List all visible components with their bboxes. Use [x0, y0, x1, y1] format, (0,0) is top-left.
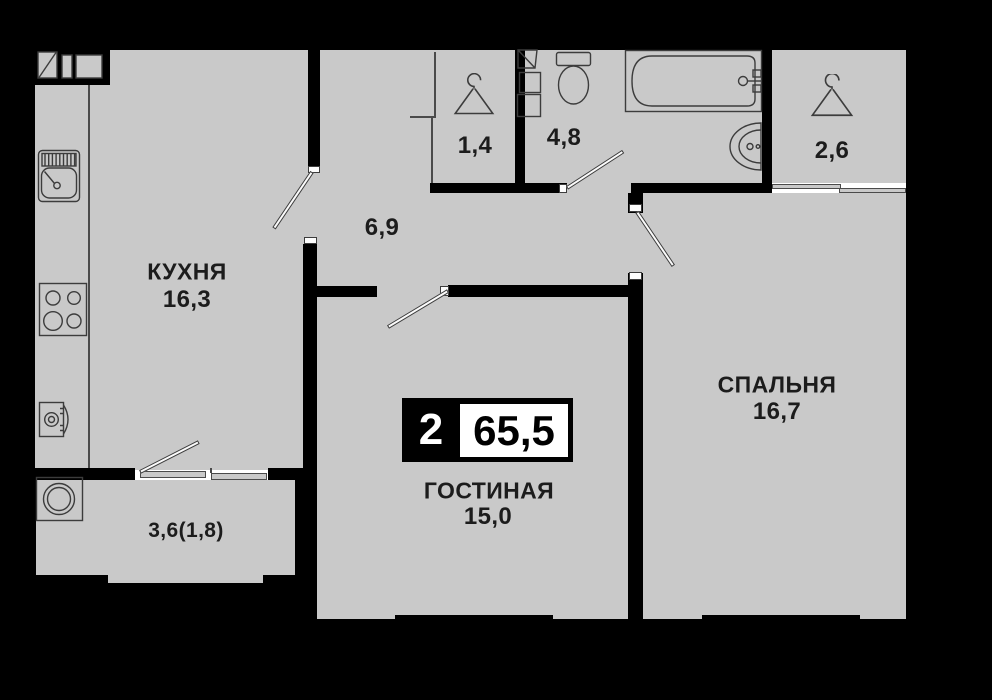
wardrobe-sliding-panel-1: [772, 184, 841, 189]
floor-doorway-kitchen: [308, 168, 320, 243]
wall-kitchen-right-upper: [308, 50, 320, 166]
screenshot-right-edge: [992, 0, 1006, 700]
wall-bedroom-top: [631, 183, 772, 193]
floor-doorway-bathroom: [567, 183, 631, 193]
jamb-kitchen-wall: [304, 237, 317, 244]
closet-partition-upper: [434, 52, 436, 116]
wall-balcony-side: [295, 470, 305, 577]
kitchen-counter-line: [88, 85, 90, 468]
label-balcony-area: 3,6(1,8): [148, 519, 224, 543]
wall-bathroom-bottom: [430, 183, 560, 193]
wall-balcony-left: [30, 468, 135, 480]
wall-living-top-right: [448, 285, 631, 297]
closet-partition-lower: [431, 118, 433, 183]
wall-closet-right: [515, 50, 525, 193]
wardrobe-sliding-panel-2: [839, 188, 906, 193]
wall-balcony-right: [268, 468, 316, 480]
wall-bedroom-left: [628, 280, 643, 620]
wall-bedroom-window-notch: [702, 615, 860, 621]
label-closet-area: 1,4: [458, 132, 493, 160]
floor-hallway-mid: [317, 193, 628, 297]
apartment-badge: 2 65,5: [402, 398, 573, 462]
label-hallway-area: 6,9: [365, 214, 400, 242]
label-kitchen-area: 16,3: [163, 286, 211, 314]
wall-vent-block: [20, 45, 110, 85]
wall-kitchen-living: [303, 244, 317, 620]
badge-room-count: 2: [402, 398, 460, 462]
badge-total-area: 65,5: [460, 404, 568, 457]
label-wardrobe-area: 2,6: [815, 137, 850, 165]
floor-plan: 2 65,5 КУХНЯ 16,3 6,9 1,4 4,8 2,6 ГОСТИН…: [0, 0, 1006, 700]
floor-closet: [433, 50, 515, 183]
floor-balcony-edge: [108, 575, 263, 583]
wall-living-window-notch: [395, 615, 553, 621]
balcony-window-panel-2: [211, 473, 267, 480]
label-living-name: ГОСТИНАЯ: [424, 478, 554, 505]
label-living-area: 15,0: [464, 503, 512, 531]
wall-bathroom-right: [762, 50, 772, 193]
label-bedroom-area: 16,7: [753, 398, 801, 426]
balcony-window-panel-1: [140, 471, 206, 478]
floor-bathroom: [525, 50, 762, 183]
jamb-bedroom-door-bottom: [629, 272, 642, 280]
label-bathroom-area: 4,8: [547, 124, 582, 152]
jamb-bedroom-door-top: [629, 204, 642, 212]
wall-living-top-left: [317, 286, 377, 297]
label-bedroom-name: СПАЛЬНЯ: [718, 372, 837, 399]
label-kitchen-name: КУХНЯ: [147, 259, 226, 286]
